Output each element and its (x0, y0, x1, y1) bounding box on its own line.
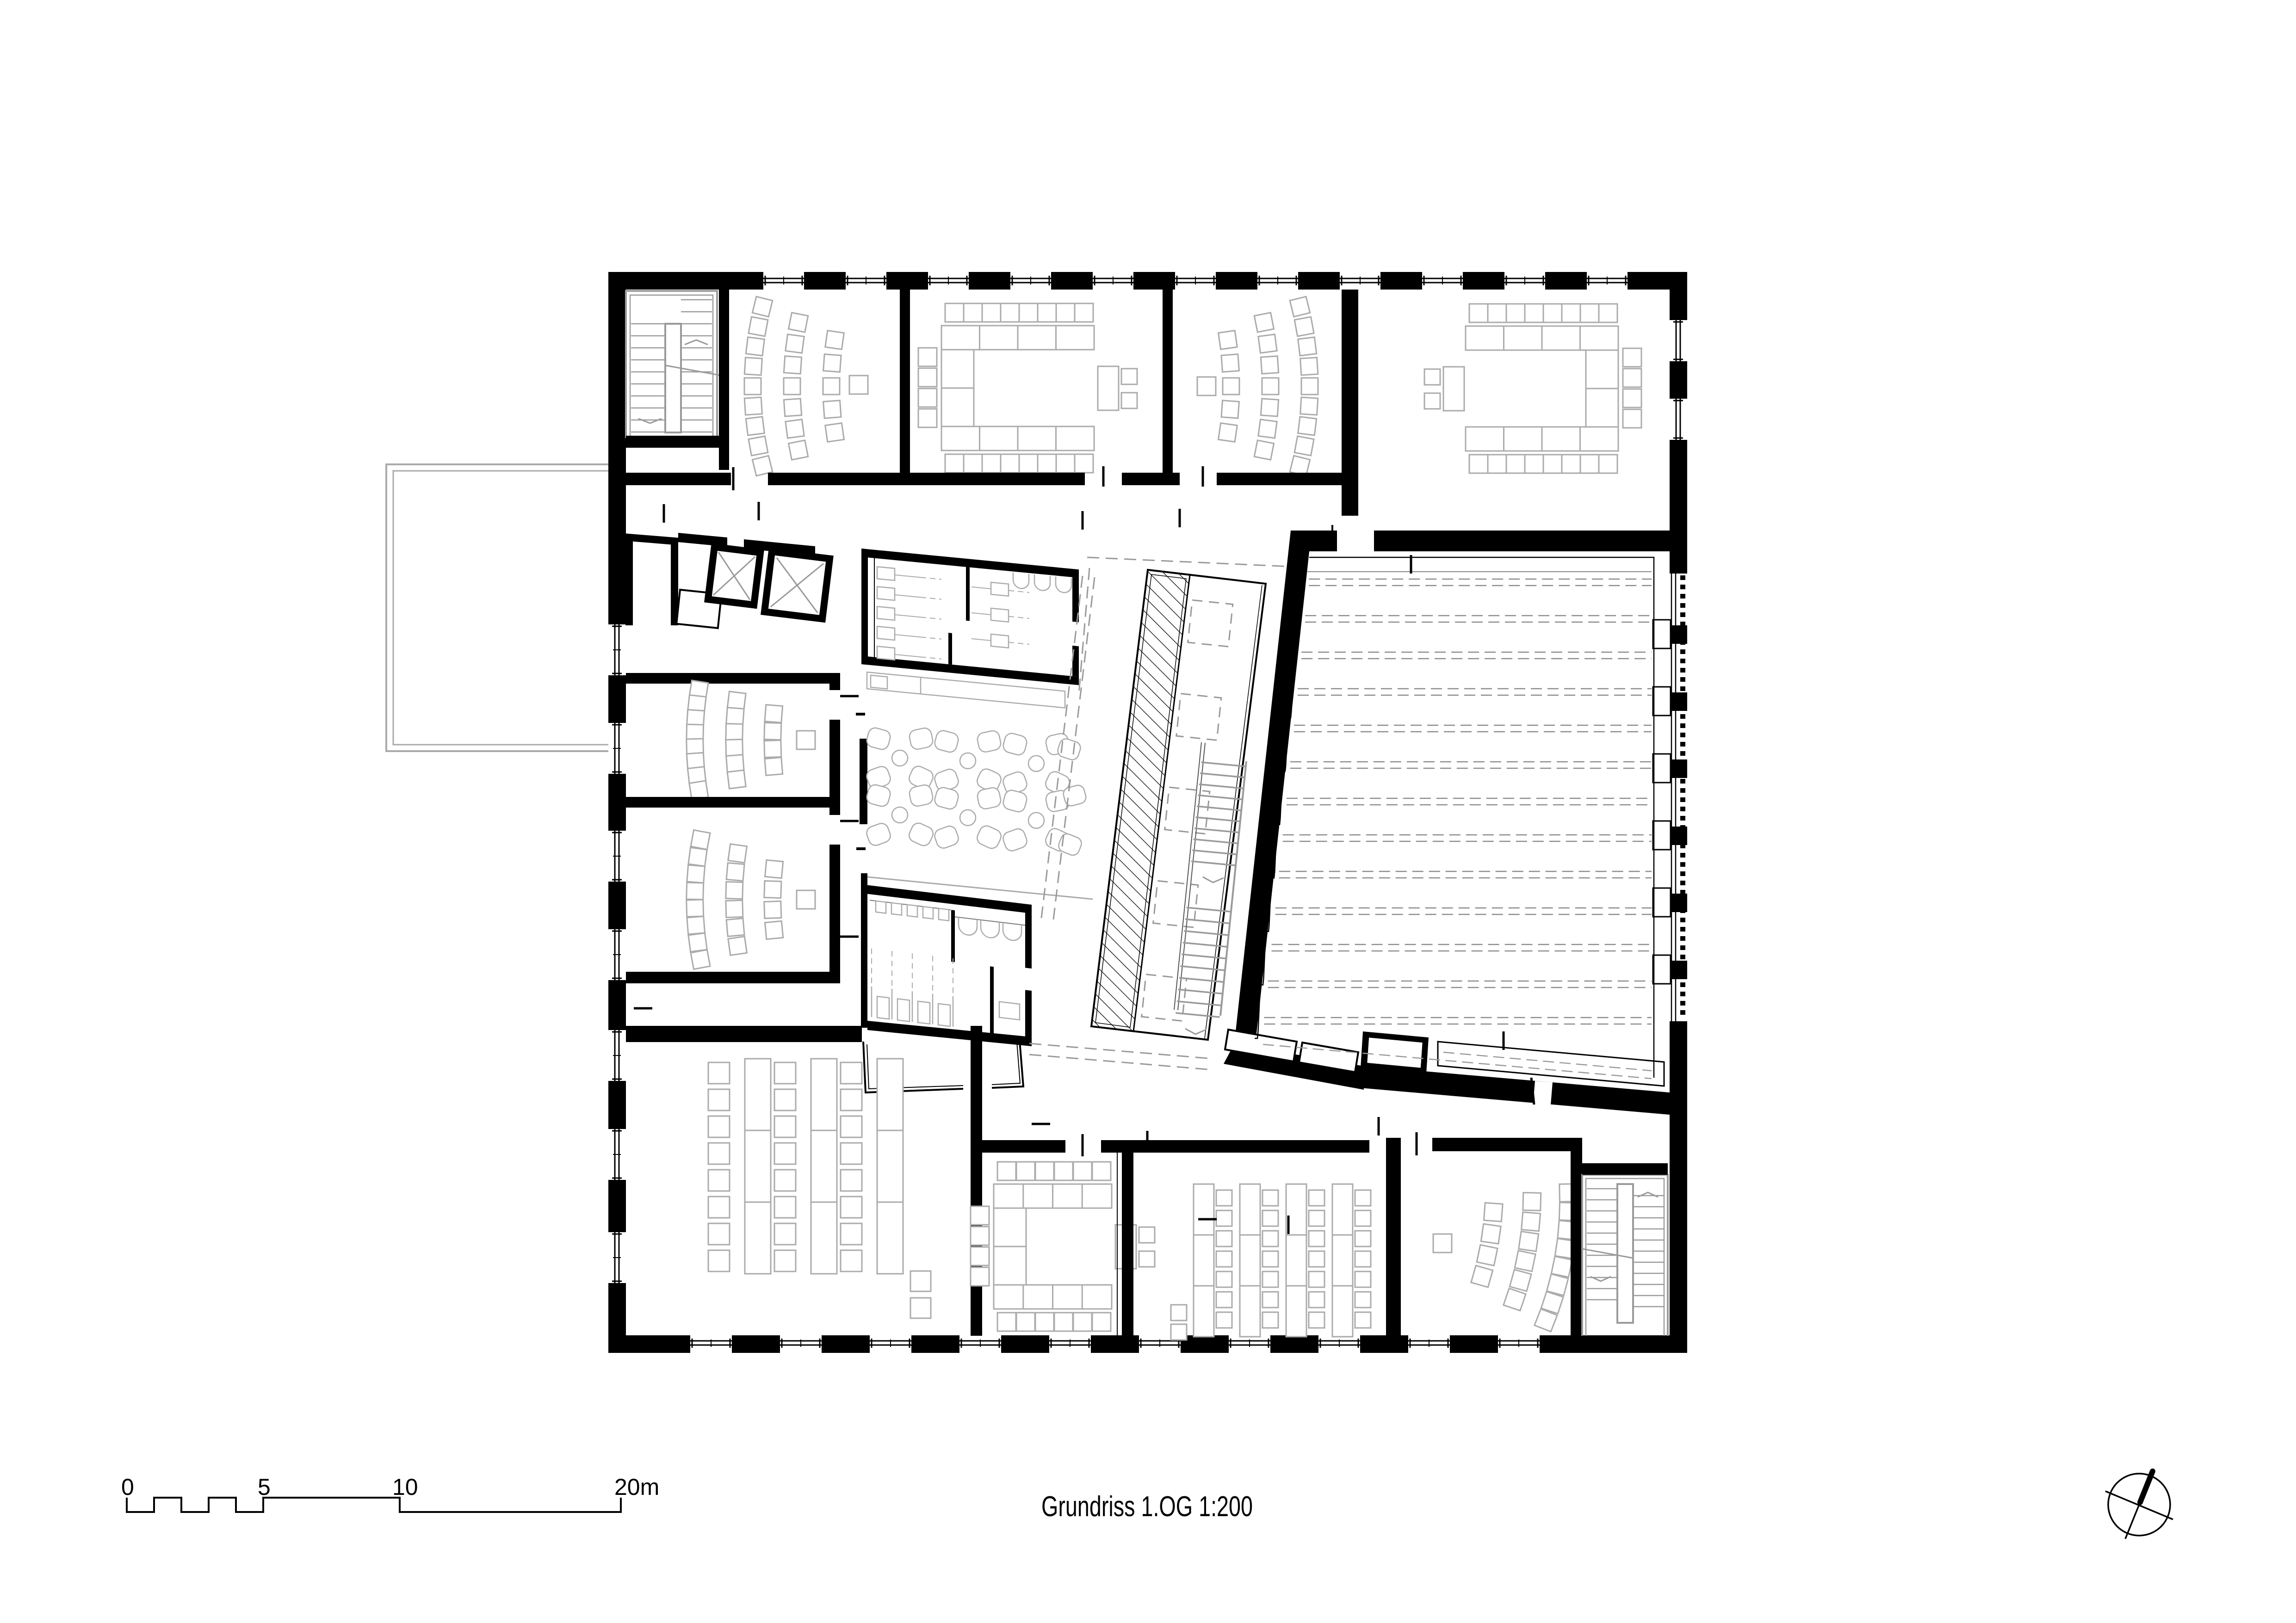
svg-text:Grundriss 1.OG 1:200: Grundriss 1.OG 1:200 (1041, 1491, 1253, 1523)
svg-text:0: 0 (121, 1474, 134, 1500)
svg-text:20m: 20m (614, 1474, 659, 1500)
svg-text:5: 5 (258, 1474, 271, 1500)
svg-text:10: 10 (392, 1474, 418, 1500)
